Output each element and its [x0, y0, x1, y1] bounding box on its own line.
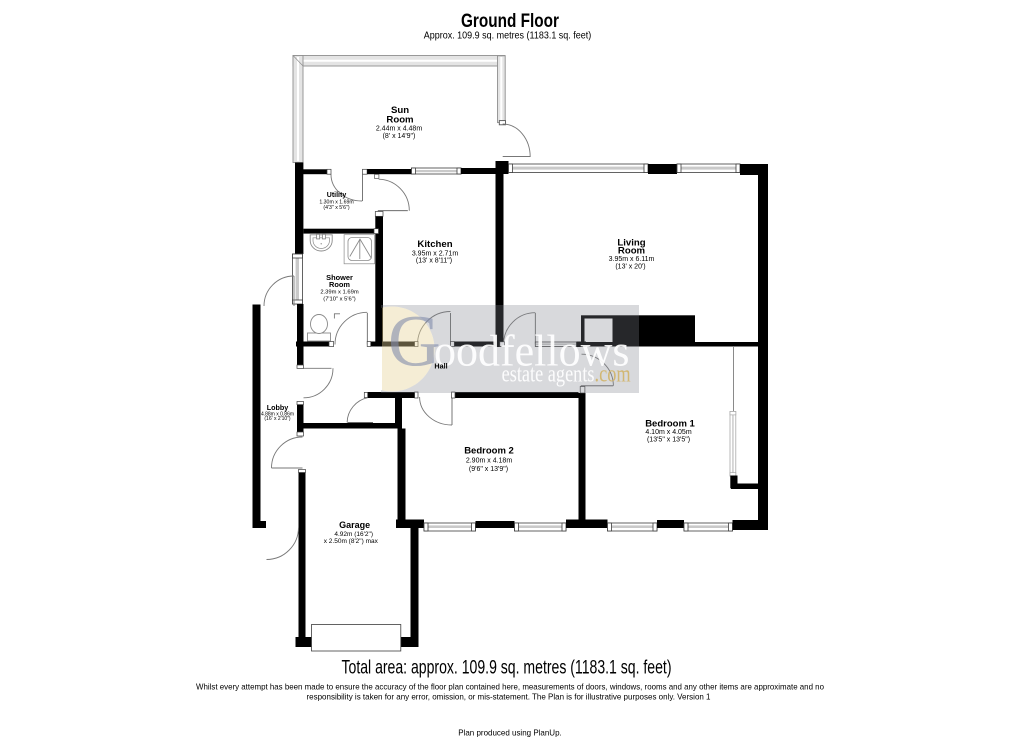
svg-text:Hall: Hall: [434, 362, 447, 371]
svg-text:Total area: approx. 109.9 sq.: Total area: approx. 109.9 sq. metres (11…: [342, 658, 672, 679]
svg-text:(13'5" x 13'5"): (13'5" x 13'5"): [647, 437, 690, 444]
svg-text:(9'6" x 13'9"): (9'6" x 13'9"): [469, 466, 508, 473]
svg-text:Room: Room: [329, 280, 350, 289]
svg-text:G: G: [388, 301, 441, 382]
svg-text:Room: Room: [618, 245, 645, 256]
svg-text:(4'3" x 5'6"): (4'3" x 5'6"): [323, 205, 349, 211]
svg-text:Utility: Utility: [327, 192, 347, 199]
svg-text:Garage: Garage: [339, 520, 370, 530]
svg-text:4.92m (16'2"): 4.92m (16'2"): [334, 531, 373, 538]
svg-text:Room: Room: [386, 115, 413, 126]
svg-text:Approx. 109.9 sq. metres (1183: Approx. 109.9 sq. metres (1183.1 sq. fee…: [424, 31, 592, 42]
svg-text:3.95m x 2.71m: 3.95m x 2.71m: [412, 250, 458, 257]
svg-text:(8' x 14'9"): (8' x 14'9"): [383, 133, 416, 140]
svg-text:(13' x 8'11"): (13' x 8'11"): [416, 258, 452, 265]
svg-text:Bedroom 1: Bedroom 1: [645, 419, 695, 430]
svg-text:4.10m x 4.05m: 4.10m x 4.05m: [645, 429, 691, 436]
svg-text:(13' x 20'): (13' x 20'): [615, 264, 645, 271]
svg-text:x 2.50m (8'2") max: x 2.50m (8'2") max: [324, 538, 379, 545]
svg-text:Whilst every attempt has been: Whilst every attempt has been made to en…: [196, 683, 824, 692]
svg-text:responsibility is taken for an: responsibility is taken for any error, o…: [307, 692, 711, 701]
svg-text:Bedroom 2: Bedroom 2: [464, 446, 514, 457]
svg-text:(7'10" x 5'6"): (7'10" x 5'6"): [323, 296, 355, 302]
svg-text:2.39m x 1.69m: 2.39m x 1.69m: [320, 290, 359, 296]
svg-text:estate agents.com: estate agents.com: [502, 360, 631, 387]
svg-text:(16' x 2'10"): (16' x 2'10"): [264, 416, 291, 422]
svg-text:Plan produced using PlanUp.: Plan produced using PlanUp.: [458, 729, 562, 738]
svg-text:3.95m x 6.11m: 3.95m x 6.11m: [609, 256, 655, 263]
svg-text:2.90m x 4.18m: 2.90m x 4.18m: [466, 458, 512, 465]
svg-text:2.44m x 4.48m: 2.44m x 4.48m: [376, 125, 422, 132]
svg-text:Kitchen: Kitchen: [417, 239, 452, 250]
svg-text:Ground Floor: Ground Floor: [461, 10, 559, 32]
